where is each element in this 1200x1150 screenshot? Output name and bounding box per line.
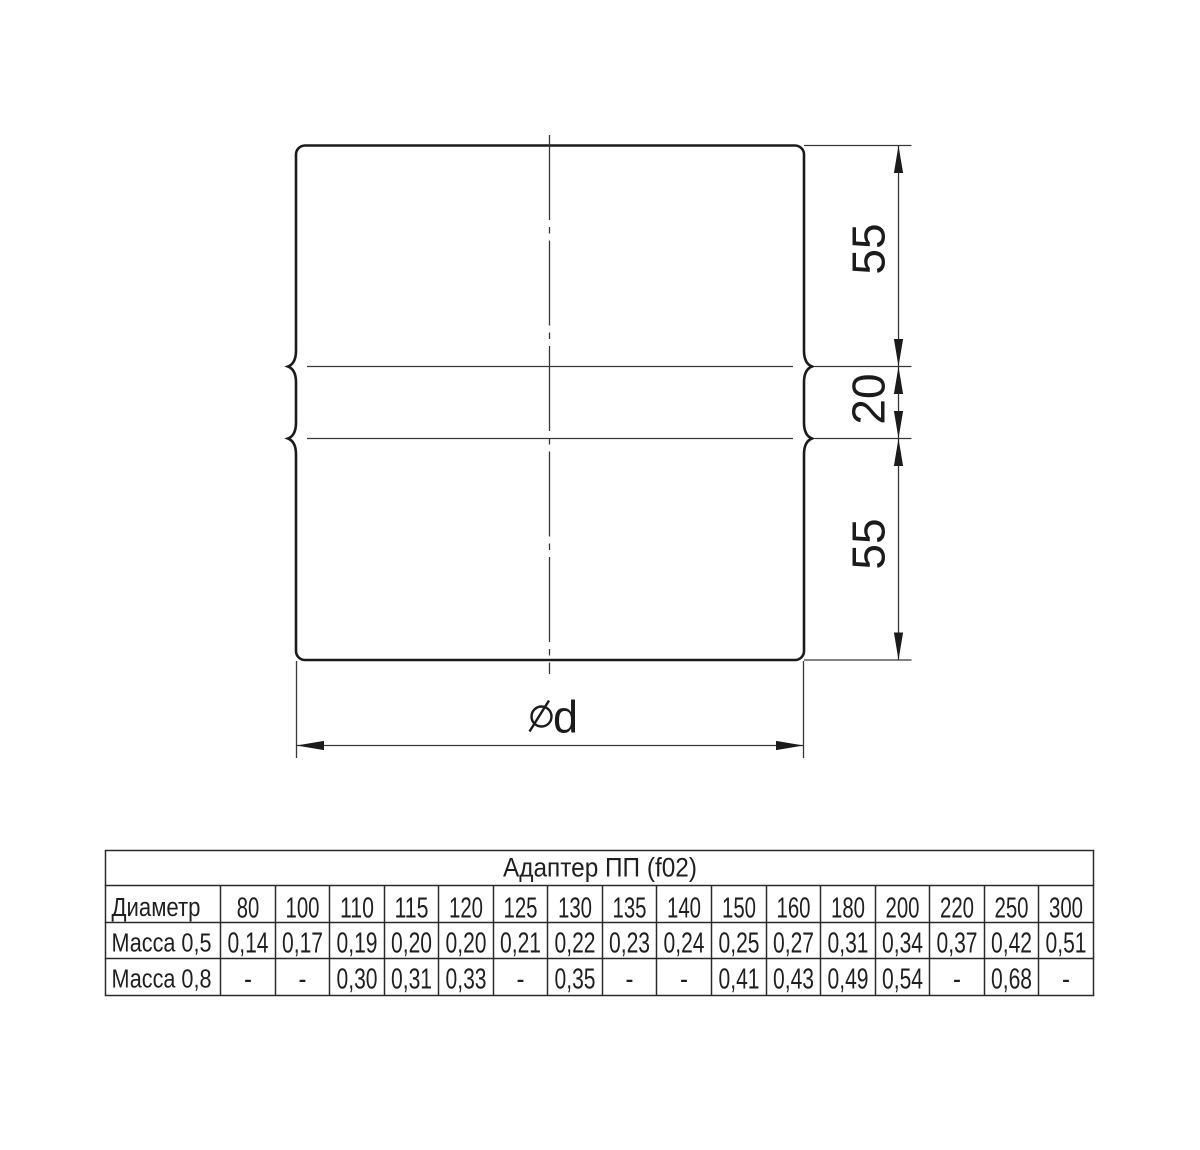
- svg-text:-: -: [244, 964, 252, 996]
- svg-text:110: 110: [340, 892, 374, 924]
- svg-text:-: -: [626, 964, 634, 996]
- svg-text:Диаметр: Диаметр: [112, 894, 201, 922]
- svg-text:0,68: 0,68: [991, 964, 1032, 996]
- svg-text:0,34: 0,34: [882, 927, 923, 959]
- svg-text:0,21: 0,21: [500, 927, 541, 959]
- svg-text:0,33: 0,33: [446, 964, 487, 996]
- svg-text:0,54: 0,54: [882, 964, 923, 996]
- svg-text:160: 160: [777, 892, 811, 924]
- svg-text:0,31: 0,31: [391, 964, 432, 996]
- svg-text:-: -: [517, 964, 525, 996]
- svg-text:200: 200: [886, 892, 920, 924]
- svg-text:0,25: 0,25: [719, 927, 760, 959]
- svg-text:80: 80: [237, 892, 260, 924]
- svg-text:-: -: [1062, 964, 1070, 996]
- svg-text:130: 130: [558, 892, 592, 924]
- svg-text:-: -: [953, 964, 961, 996]
- svg-text:135: 135: [613, 892, 647, 924]
- svg-text:d: d: [553, 692, 578, 743]
- svg-text:115: 115: [395, 892, 429, 924]
- svg-text:300: 300: [1049, 892, 1083, 924]
- svg-text:0,49: 0,49: [828, 964, 869, 996]
- svg-text:Масса 0,8: Масса 0,8: [112, 966, 212, 994]
- svg-text:0,24: 0,24: [664, 927, 705, 959]
- svg-text:0,41: 0,41: [719, 964, 760, 996]
- svg-text:-: -: [680, 964, 688, 996]
- svg-text:120: 120: [449, 892, 483, 924]
- svg-text:55: 55: [843, 223, 895, 274]
- svg-text:0,22: 0,22: [555, 927, 596, 959]
- svg-text:150: 150: [722, 892, 756, 924]
- svg-text:0,20: 0,20: [391, 927, 432, 959]
- svg-text:0,42: 0,42: [991, 927, 1032, 959]
- svg-text:220: 220: [940, 892, 974, 924]
- svg-text:Масса 0,5: Масса 0,5: [112, 929, 212, 957]
- svg-text:250: 250: [995, 892, 1029, 924]
- svg-text:55: 55: [843, 518, 895, 569]
- svg-text:140: 140: [667, 892, 701, 924]
- svg-text:-: -: [299, 964, 307, 996]
- svg-text:125: 125: [504, 892, 538, 924]
- svg-text:0,31: 0,31: [828, 927, 869, 959]
- svg-text:0,27: 0,27: [773, 927, 814, 959]
- svg-text:0,30: 0,30: [337, 964, 378, 996]
- svg-text:Адаптер ПП (f02): Адаптер ПП (f02): [503, 853, 697, 883]
- svg-text:180: 180: [831, 892, 865, 924]
- svg-text:0,37: 0,37: [937, 927, 978, 959]
- svg-text:20: 20: [843, 373, 895, 424]
- svg-text:0,43: 0,43: [773, 964, 814, 996]
- svg-text:0,35: 0,35: [555, 964, 596, 996]
- svg-text:0,20: 0,20: [446, 927, 487, 959]
- svg-text:0,17: 0,17: [282, 927, 323, 959]
- svg-text:0,14: 0,14: [228, 927, 269, 959]
- svg-text:100: 100: [286, 892, 320, 924]
- svg-text:0,23: 0,23: [609, 927, 650, 959]
- svg-text:0,19: 0,19: [337, 927, 378, 959]
- svg-text:0,51: 0,51: [1046, 927, 1087, 959]
